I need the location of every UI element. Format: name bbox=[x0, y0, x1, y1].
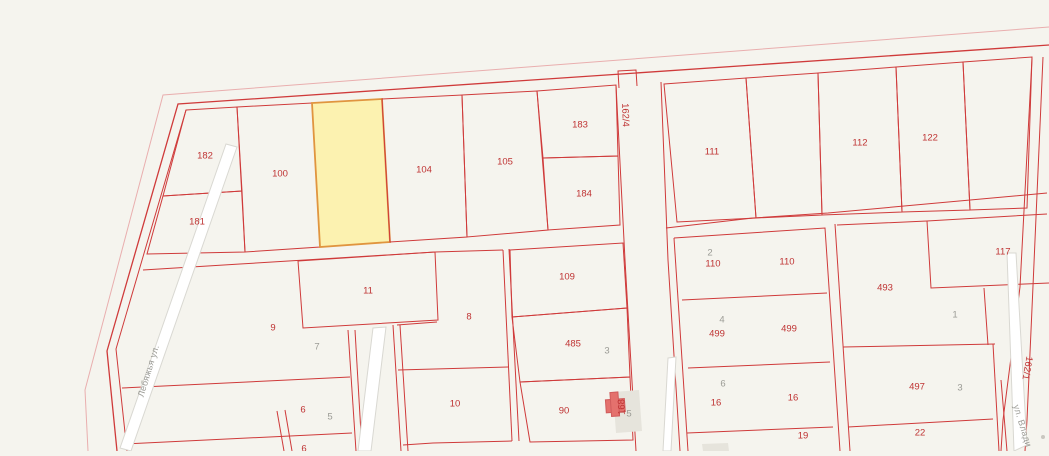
parcel-number-6: 6 bbox=[300, 405, 305, 416]
parcel-number-117: 117 bbox=[995, 247, 1010, 258]
parcel-number-497: 497 bbox=[909, 382, 925, 393]
parcel-number-6: 6 bbox=[301, 444, 306, 451]
parcel-number-184: 184 bbox=[576, 189, 592, 200]
parcel-number-19: 19 bbox=[798, 431, 809, 442]
parcel-number-100: 100 bbox=[272, 169, 288, 180]
parcel-number-182: 182 bbox=[197, 151, 213, 162]
address-number-7: 7 bbox=[314, 342, 319, 353]
parcel-number-110: 110 bbox=[705, 259, 720, 270]
map-marker-dot bbox=[1041, 435, 1045, 439]
parcel-selected[interactable] bbox=[312, 99, 390, 247]
parcel-number-16: 16 bbox=[711, 398, 722, 409]
parcel-number-110: 110 bbox=[779, 257, 794, 268]
parcel-number-122: 122 bbox=[922, 133, 938, 144]
parcel-number-109: 109 bbox=[559, 272, 575, 283]
parcel-number-112: 112 bbox=[852, 138, 867, 149]
parcel-number-499: 499 bbox=[781, 324, 797, 335]
parcel-number-162/4: 162/4 bbox=[619, 103, 631, 127]
parcel-number-168: 168 bbox=[616, 399, 628, 415]
parcel-number-111: 111 bbox=[705, 147, 719, 158]
parcel-number-105: 105 bbox=[497, 157, 513, 168]
parcel-number-22: 22 bbox=[915, 428, 926, 439]
parcel-number-499: 499 bbox=[709, 329, 725, 340]
address-number-2: 2 bbox=[707, 248, 712, 259]
parcel-number-90: 90 bbox=[559, 406, 570, 417]
parcel-number-9: 9 bbox=[270, 323, 275, 334]
parcel-number-16: 16 bbox=[788, 393, 799, 404]
address-number-6: 6 bbox=[720, 379, 725, 390]
address-number-3: 3 bbox=[957, 383, 962, 394]
address-number-1: 1 bbox=[952, 310, 957, 321]
parcel-number-104: 104 bbox=[416, 165, 432, 176]
map-viewport[interactable]: 1821811001041051831841111121221171094859… bbox=[0, 0, 1049, 451]
address-number-3: 3 bbox=[604, 346, 609, 357]
parcel-number-493: 493 bbox=[877, 283, 893, 294]
building-footprint-2[interactable] bbox=[702, 443, 729, 451]
parcel-number-11: 11 bbox=[363, 286, 373, 297]
address-number-5: 5 bbox=[327, 412, 332, 423]
cadastral-map: 1821811001041051831841111121221171094859… bbox=[0, 0, 1049, 451]
parcel-number-8: 8 bbox=[466, 312, 471, 323]
parcel-number-10: 10 bbox=[450, 399, 461, 410]
parcel-number-485: 485 bbox=[565, 339, 581, 350]
address-number-4: 4 bbox=[719, 315, 724, 326]
parcel-number-183: 183 bbox=[572, 120, 588, 131]
parcel-number-181: 181 bbox=[189, 217, 205, 228]
